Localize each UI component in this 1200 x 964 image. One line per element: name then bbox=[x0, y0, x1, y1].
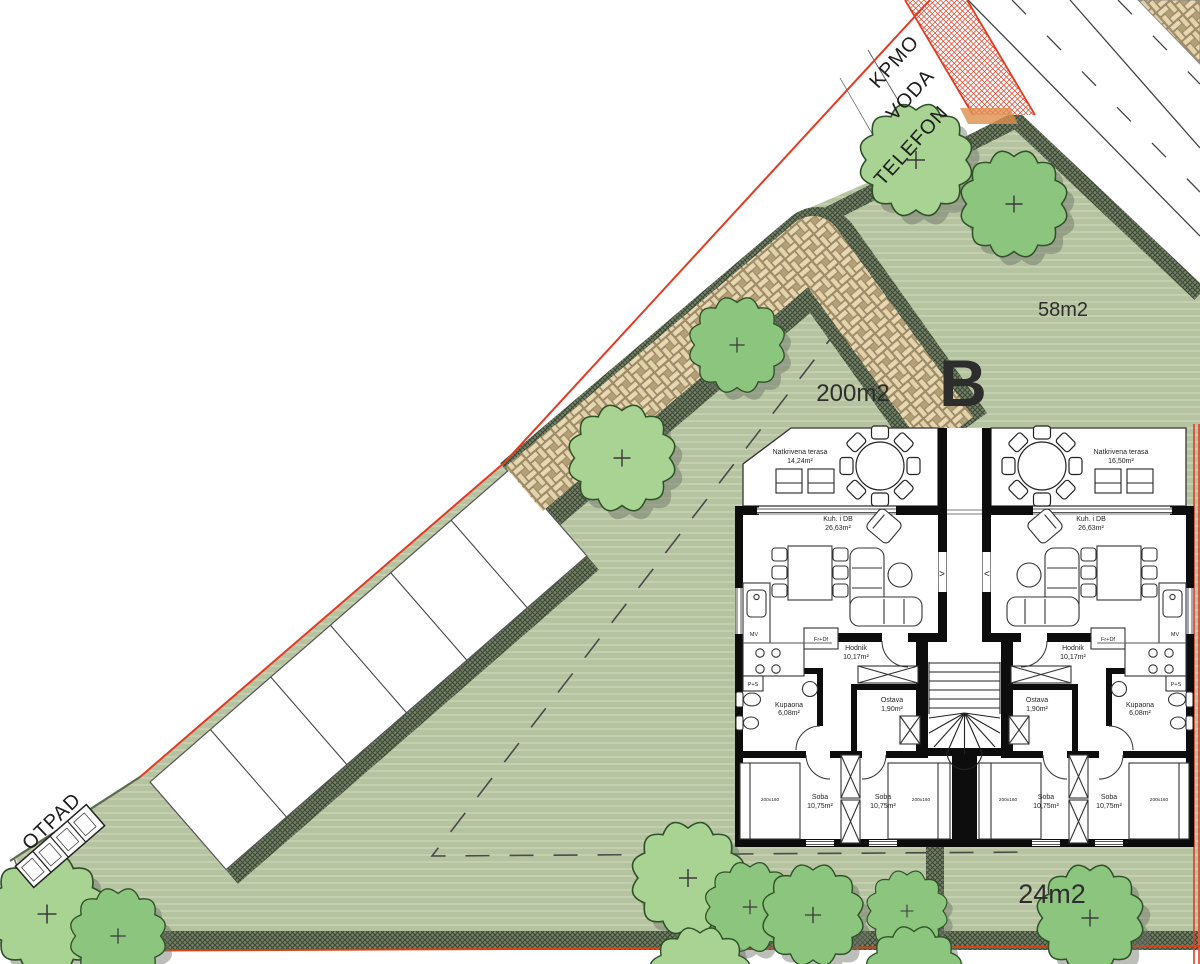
area-58: 58m2 bbox=[1038, 299, 1088, 321]
hall-right-name: Hodnik bbox=[1062, 645, 1084, 652]
storage-right-area: 1,90m² bbox=[1026, 706, 1048, 713]
terrace-left-area: 14,24m² bbox=[787, 458, 813, 465]
bath-right-area: 6,08m² bbox=[1129, 710, 1151, 717]
bed2-right-size: 200x160 bbox=[999, 797, 1018, 803]
bedroom1-right-area: 10,75m² bbox=[1096, 803, 1122, 810]
bath-right-name: Kupaona bbox=[1126, 702, 1154, 709]
bed1-right-size: 200x160 bbox=[1150, 797, 1169, 803]
bedroom2-left-name: Soba bbox=[875, 794, 891, 801]
site-plan-drawing: KPMO VODA TELEFON OTPAD B 200m2 58m2 24m… bbox=[0, 0, 1200, 964]
terrace-right-name: Natkrivena terasa bbox=[1094, 449, 1149, 456]
area-200: 200m2 bbox=[816, 380, 889, 407]
bed1-left-size: 200x160 bbox=[761, 797, 780, 803]
mv-right-label: MV bbox=[1171, 632, 1180, 638]
bedroom2-right-name: Soba bbox=[1038, 794, 1054, 801]
washer-right-label: P+S bbox=[1171, 682, 1182, 688]
door-marker-right: < bbox=[984, 569, 990, 580]
area-24: 24m2 bbox=[1018, 879, 1086, 909]
living-left-area: 26,63m² bbox=[825, 525, 851, 532]
bed2-left-size: 200x160 bbox=[912, 797, 931, 803]
building-b bbox=[735, 426, 1194, 847]
washer-left-label: P+S bbox=[748, 682, 759, 688]
terrace-table-right bbox=[1002, 426, 1082, 506]
terrace-table-left bbox=[840, 426, 920, 506]
bedroom1-right-name: Soba bbox=[1101, 794, 1117, 801]
storage-left-area: 1,90m² bbox=[881, 706, 903, 713]
fridge-right-label: Fr+Df bbox=[1101, 637, 1115, 643]
mv-left-label: MV bbox=[750, 632, 759, 638]
entrance-passage bbox=[947, 428, 982, 634]
terrace-right-area: 16,50m² bbox=[1108, 458, 1134, 465]
terrace-left-name: Natkrivena terasa bbox=[773, 449, 828, 456]
living-right-name: Kuh. i DB bbox=[1076, 516, 1106, 523]
storage-left-name: Ostava bbox=[881, 697, 903, 704]
storage-right-name: Ostava bbox=[1026, 697, 1048, 704]
bedroom1-left-area: 10,75m² bbox=[807, 803, 833, 810]
bedroom2-right-area: 10,75m² bbox=[1033, 803, 1059, 810]
building-letter: B bbox=[939, 346, 987, 420]
bath-left-name: Kupaona bbox=[775, 702, 803, 709]
door-marker-left: > bbox=[939, 569, 945, 580]
bedroom2-left-area: 10,75m² bbox=[870, 803, 896, 810]
hall-right-area: 10,17m² bbox=[1060, 654, 1086, 661]
bath-left-area: 6,08m² bbox=[778, 710, 800, 717]
hall-left-name: Hodnik bbox=[845, 645, 867, 652]
site-plan-page: KPMO VODA TELEFON OTPAD B 200m2 58m2 24m… bbox=[0, 0, 1200, 964]
living-left-name: Kuh. i DB bbox=[823, 516, 853, 523]
gravel-patch bbox=[960, 108, 1018, 124]
fridge-left-label: Fr+Df bbox=[814, 637, 828, 643]
bedroom1-left-name: Soba bbox=[812, 794, 828, 801]
hall-left-area: 10,17m² bbox=[843, 654, 869, 661]
living-right-area: 26,63m² bbox=[1078, 525, 1104, 532]
